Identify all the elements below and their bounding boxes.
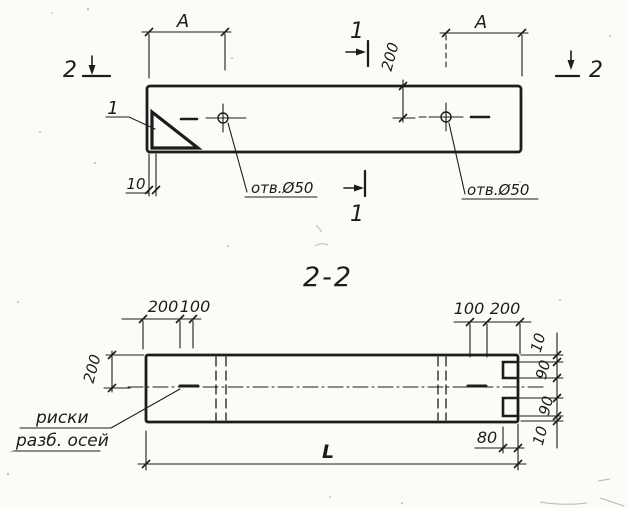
section-marker-2-right: 2 (556, 51, 603, 83)
hidden-hole-lines (216, 357, 446, 420)
dimension-10: 10 (126, 154, 160, 196)
hole-right (419, 103, 489, 131)
section-view-2-2: 2-2 200 100 (13, 262, 563, 470)
hole-label-text: отв.Ø50 (467, 181, 529, 199)
stray-mark (540, 502, 587, 504)
notch-lower (503, 398, 518, 416)
plan-view: A A 200 1 1 (63, 11, 603, 227)
stray-mark (598, 479, 610, 481)
dim-200-label: 200 (80, 353, 105, 385)
dim-200-label: 200 (490, 299, 521, 318)
dim-200-label: 200 (148, 297, 179, 316)
beam-outline-plan (147, 86, 521, 152)
notch-upper (503, 362, 518, 378)
stray-mark (315, 244, 328, 246)
arrow-down-icon (568, 60, 575, 70)
dim-200-label: 200 (378, 41, 403, 73)
dimension-left-200-100: 200 100 (122, 297, 210, 349)
stray-mark (600, 498, 624, 506)
hole-label-right: отв.Ø50 (449, 123, 538, 199)
hole-label-left: отв.Ø50 (228, 123, 317, 197)
section-marker-1-top: 1 (346, 19, 368, 66)
marker-number: 2 (63, 58, 77, 83)
dim-100-label: 100 (454, 299, 485, 318)
dimension-80: 80 (475, 427, 524, 453)
marker-number: 1 (350, 202, 364, 227)
dimension-length-L: L (138, 424, 526, 470)
axis-marks-note: риски разб. осей (13, 389, 180, 451)
leader-line (228, 123, 247, 192)
dimension-chain-right: 10 90 90 10 (520, 331, 563, 448)
arrow-down-icon (89, 65, 96, 75)
axis-note-line2: разб. осей (15, 431, 109, 451)
beam-outline-section (146, 355, 518, 422)
dim-a-right-label: A (474, 12, 487, 33)
callout-number: 1 (107, 98, 118, 119)
section-title: 2-2 (303, 262, 353, 293)
dimension-right-100-200: 100 200 (454, 299, 531, 357)
drawing-sheet: A A 200 1 1 (0, 0, 628, 508)
marker-number: 2 (589, 58, 603, 83)
dim-a-left-label: A (176, 11, 189, 32)
axis-note-line1: риски (35, 408, 89, 428)
dim-10-label: 10 (126, 175, 145, 193)
dimension-a-left: A (142, 11, 231, 78)
corner-triangle-detail (152, 112, 198, 148)
section-marker-2-left: 2 (63, 56, 110, 83)
technical-drawing: A A 200 1 1 (0, 0, 628, 508)
marker-number: 1 (350, 19, 364, 44)
dim-100-label: 100 (180, 297, 211, 316)
stray-mark (316, 225, 322, 232)
hole-left (181, 104, 246, 132)
dim-10-label: 10 (527, 331, 549, 354)
centerline-row (128, 386, 545, 387)
section-marker-1-bottom: 1 (344, 171, 365, 227)
dimension-height-200: 200 (80, 351, 144, 392)
hole-label-text: отв.Ø50 (251, 179, 313, 197)
dim-10-label: 10 (529, 424, 551, 447)
dim-80-label: 80 (477, 428, 497, 447)
dim-length-label: L (322, 441, 334, 463)
dimension-a-right: A (440, 12, 528, 76)
leader-line (449, 123, 465, 194)
arrow-right-icon (356, 49, 366, 56)
arrow-right-icon (354, 185, 364, 192)
dimension-200-plan: 200 (378, 41, 415, 122)
